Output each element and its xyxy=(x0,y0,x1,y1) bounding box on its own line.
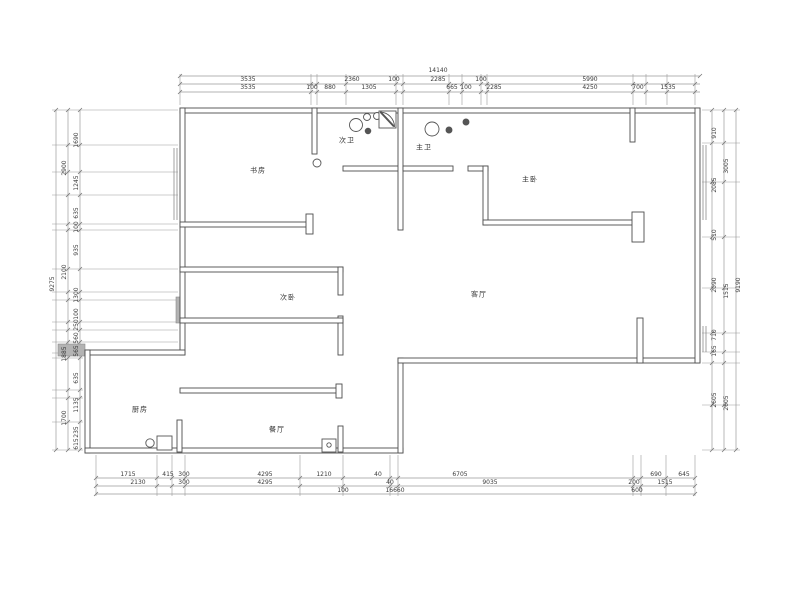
dim-label: 3005 xyxy=(724,158,730,173)
wall-bath1-bottom-a xyxy=(403,166,453,171)
wall-bath1-right xyxy=(483,166,488,225)
dim-label: 2130 xyxy=(130,480,145,486)
window-symbol xyxy=(703,145,706,220)
dim-label: 4295 xyxy=(257,480,272,486)
dim-label: 690 xyxy=(650,472,661,478)
fixtures-group xyxy=(146,111,469,452)
dim-label: 9035 xyxy=(482,480,497,486)
dim-label: 2360 xyxy=(344,77,359,83)
wall-dining-stub xyxy=(338,426,343,452)
door-pivot-icon xyxy=(313,159,321,167)
wall-pier-study xyxy=(306,214,313,234)
wall-bedroom2-top xyxy=(180,267,343,272)
wall-hall-endcap xyxy=(336,384,342,398)
dim-label: 3535 xyxy=(240,85,255,91)
dim-label: 100 xyxy=(388,77,399,83)
wall-study-bottom xyxy=(180,222,308,227)
room-label-study: 书房 xyxy=(250,168,266,175)
room-label-dining-room: 餐厅 xyxy=(269,427,285,434)
wall-bath2-bottom xyxy=(343,166,400,171)
dim-label: 1690 xyxy=(74,132,80,147)
wall-living-top xyxy=(483,220,638,225)
dim-label: 2285 xyxy=(430,77,445,83)
dim-label: 100 xyxy=(460,85,471,91)
dim-label: 700 xyxy=(632,85,643,91)
dim-label: 9190 xyxy=(736,277,742,292)
dim-label: 2285 xyxy=(486,85,501,91)
fixture-circle-icon xyxy=(146,439,154,447)
dim-label: 1245 xyxy=(74,175,80,190)
dim-label: 1210 xyxy=(316,472,331,478)
room-label-kitchen: 厨房 xyxy=(132,407,148,414)
dim-label: 5990 xyxy=(582,77,597,83)
dim-label: 710 xyxy=(712,329,718,340)
window-symbol xyxy=(703,326,706,352)
basin-icon xyxy=(350,119,363,132)
dim-label: 1715 xyxy=(120,472,135,478)
room-label-second-bedroom: 次卧 xyxy=(280,295,296,302)
room-label-living-room: 客厅 xyxy=(471,292,487,299)
dim-label: 40 xyxy=(386,480,394,486)
wall-bottom xyxy=(85,448,403,453)
fixture-circle-icon xyxy=(364,114,371,121)
drain-icon xyxy=(463,119,469,125)
wall-bedroom2-right-a xyxy=(338,267,343,295)
dim-label: 565 xyxy=(74,345,80,356)
dim-label: 1885 xyxy=(62,346,68,361)
wall-kitchen-left xyxy=(85,350,90,453)
dim-label: 935 xyxy=(74,244,80,255)
dim-label: 2605 xyxy=(712,392,718,407)
dim-label: 16660 xyxy=(385,488,404,494)
dim-label: 300 xyxy=(178,472,189,478)
wall-living-right-stub xyxy=(637,318,643,363)
dim-label: 3535 xyxy=(240,77,255,83)
basin-icon xyxy=(425,122,439,136)
dim-label: 1535 xyxy=(660,85,675,91)
dim-label: 600 xyxy=(631,488,642,494)
wall-kitchen-top xyxy=(85,350,185,355)
dim-label: 2100 xyxy=(62,264,68,279)
room-label-second-bath: 次卫 xyxy=(339,138,355,145)
wall-right xyxy=(695,108,700,363)
dim-label: 1515 xyxy=(724,283,730,298)
dimension-line xyxy=(52,74,740,496)
dim-label: 100 xyxy=(337,488,348,494)
dim-label: 615 xyxy=(74,438,80,449)
dim-label: 1515 xyxy=(657,480,672,486)
dim-label: 910 xyxy=(712,127,718,138)
dim-label: 250 xyxy=(74,319,80,330)
wall-mid-vertical xyxy=(398,108,403,230)
wall-hall xyxy=(180,388,338,393)
dim-label: 1135 xyxy=(74,397,80,412)
wall-step-vertical xyxy=(398,358,403,453)
dim-label: 100 xyxy=(74,308,80,319)
dim-label: 1300 xyxy=(74,287,80,302)
dim-label: 100 xyxy=(306,85,317,91)
dim-label: 510 xyxy=(712,229,718,240)
dim-label: 645 xyxy=(678,472,689,478)
dim-label: 40 xyxy=(374,472,382,478)
dim-label: 2605 xyxy=(724,395,730,410)
floor-plan-drawing xyxy=(0,0,800,600)
room-label-master-bath: 主卫 xyxy=(416,145,432,152)
dim-label: 2085 xyxy=(712,177,718,192)
wall-bedroom2-bottom xyxy=(180,318,343,323)
dim-label: 165 xyxy=(712,345,718,356)
dim-label: 415 xyxy=(162,472,173,478)
dim-label: 200 xyxy=(628,480,639,486)
dim-label: 635 xyxy=(74,372,80,383)
dim-label: 665 xyxy=(446,85,457,91)
dim-label: 560 xyxy=(74,332,80,343)
floor-plan-canvas: 书房次卫主卫主卧次卧客厅厨房餐厅141403535236010022851005… xyxy=(0,0,800,600)
dim-label: 635 xyxy=(74,207,80,218)
wall-kitchen-right-stub xyxy=(177,420,182,452)
wall-top-stub xyxy=(630,108,635,142)
dim-label: 6705 xyxy=(452,472,467,478)
fixture-circle-icon xyxy=(327,443,331,447)
dim-label: 1305 xyxy=(361,85,376,91)
dim-label: 4295 xyxy=(257,472,272,478)
dimension-lines-group xyxy=(52,74,740,496)
dim-label: 4250 xyxy=(582,85,597,91)
wall-study-right xyxy=(312,108,317,154)
dim-label: 9275 xyxy=(50,276,56,291)
dim-label: 235 xyxy=(74,426,80,437)
drain-icon xyxy=(446,127,452,133)
dim-label: 100 xyxy=(475,77,486,83)
room-label-master-bedroom: 主卧 xyxy=(522,177,538,184)
wall-bottom-right xyxy=(398,358,700,363)
window-symbol xyxy=(174,148,177,220)
cabinet-icon xyxy=(157,436,172,450)
dim-label: 880 xyxy=(324,85,335,91)
wall-top xyxy=(180,108,700,113)
dim-label: 100 xyxy=(74,221,80,232)
drain-icon xyxy=(365,128,371,134)
dim-label: 2900 xyxy=(62,160,68,175)
dim-label: 1700 xyxy=(62,410,68,425)
wall-pier-living xyxy=(632,212,644,242)
dim-label: 300 xyxy=(178,480,189,486)
dim-label: 2090 xyxy=(712,277,718,292)
dim-label-total-top: 14140 xyxy=(428,68,447,74)
